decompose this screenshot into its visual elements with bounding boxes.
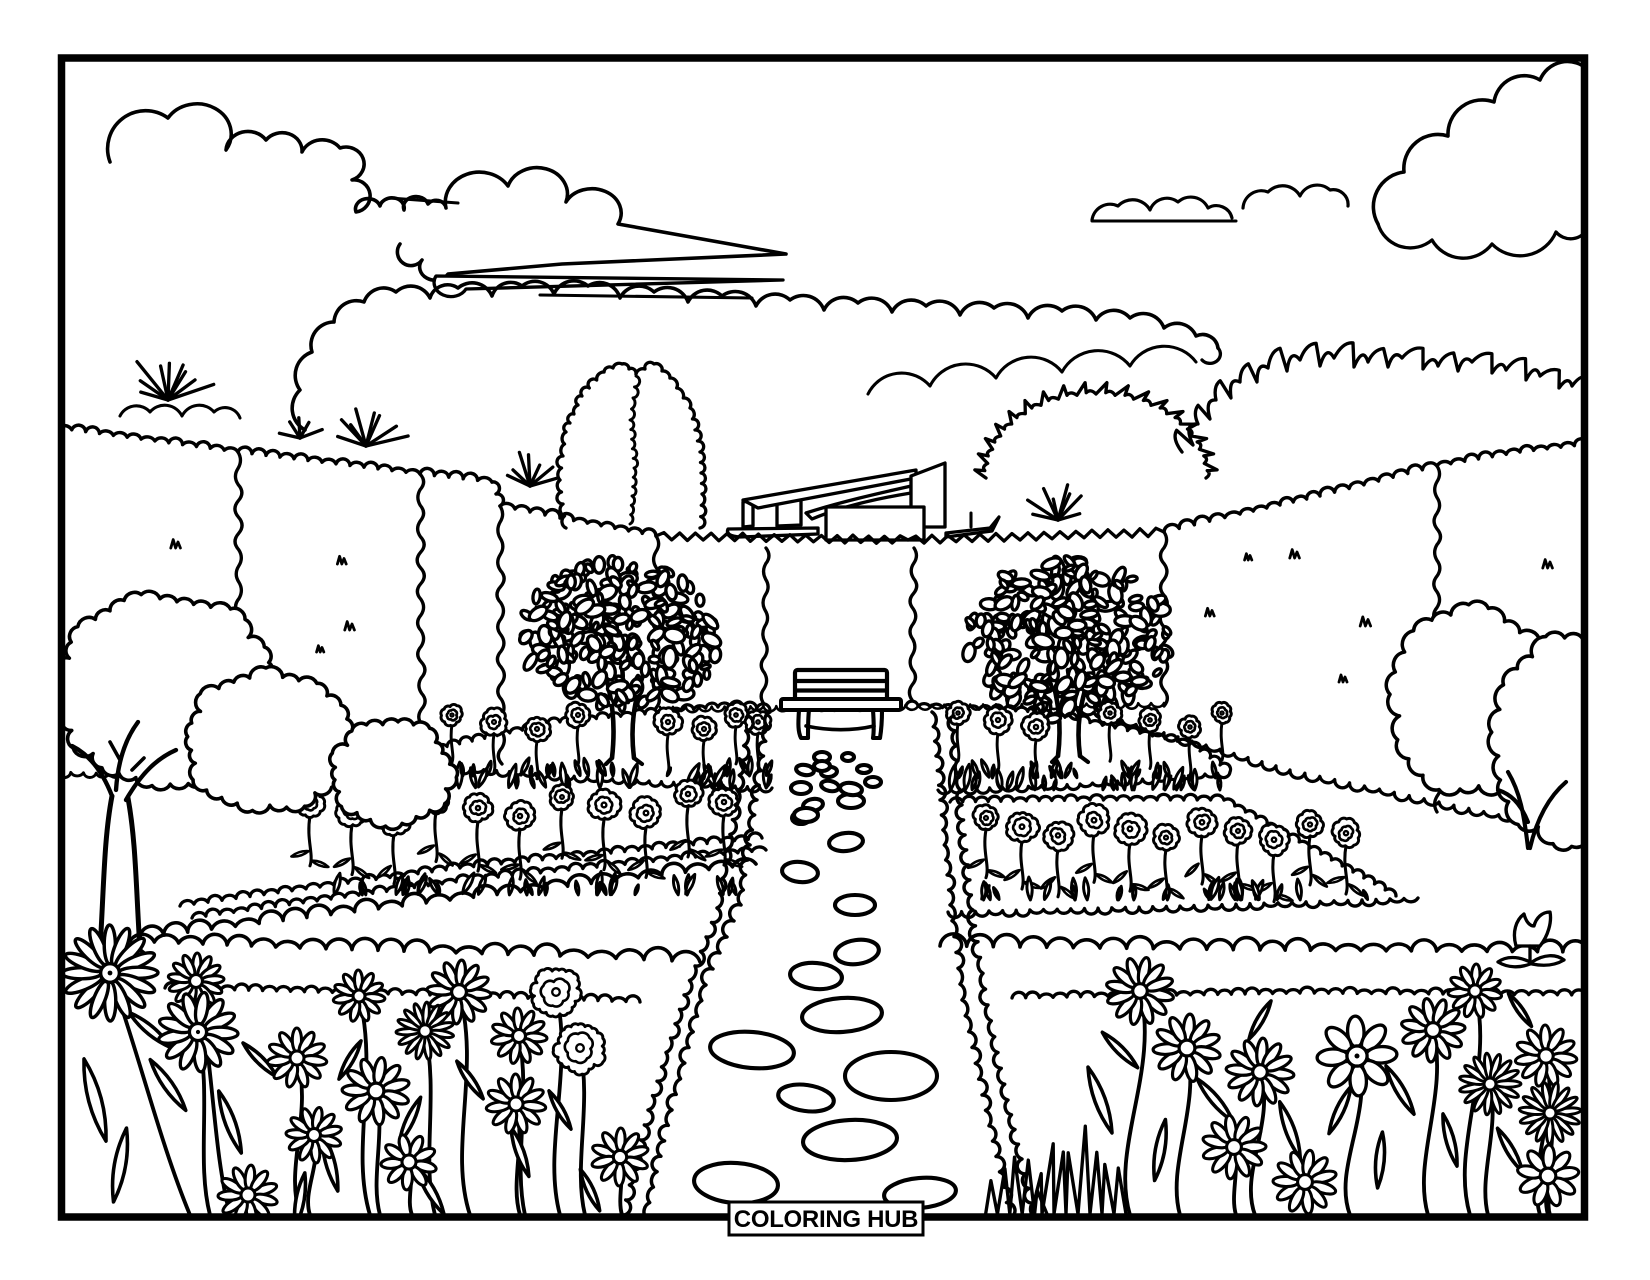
svg-text:COLORING HUB: COLORING HUB — [734, 1206, 918, 1233]
